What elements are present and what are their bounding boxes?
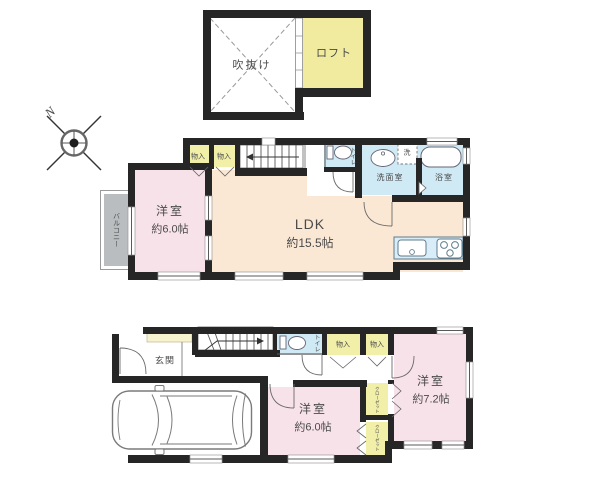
toilet-icon-2f <box>327 146 352 159</box>
bedroom2-name: 洋室 <box>299 403 327 415</box>
closet2-label: クローゼット <box>375 425 380 452</box>
washroom-label: 洗面室 <box>377 174 404 182</box>
bedroom-2f <box>135 170 205 272</box>
stairs-1f-arrow <box>257 338 264 345</box>
loft-label: ロフト <box>316 49 352 60</box>
kitchen-sink-icon <box>398 240 426 256</box>
door-arc-toilet-1f <box>302 355 322 375</box>
car-mirror-top <box>155 386 164 392</box>
bedroom1-size: 約7.2帖 <box>412 395 449 406</box>
loft-divider-window <box>296 18 303 88</box>
bedroom1-name: 洋室 <box>417 375 445 387</box>
bedroom-2f-size: 約6.0帖 <box>151 225 188 236</box>
washer-label: 洗 <box>404 150 411 157</box>
bathtub-icon <box>421 147 461 167</box>
ldk-room-right <box>355 196 463 272</box>
sink-icon <box>371 150 395 167</box>
car-mirror-bottom <box>155 449 164 455</box>
compass-icon <box>47 116 101 170</box>
bathroom-label: 浴室 <box>435 174 453 182</box>
door-arc-entrance <box>120 348 146 374</box>
storage2-1f-door <box>368 357 386 366</box>
void-label: 吹抜け <box>233 61 272 72</box>
floor-plan: 吹抜け ロフト N 物入 物入 トイレ 洗面室 洗 浴室 洋室 約6.0帖 LD… <box>0 0 600 480</box>
storage2-2f-label: 物入 <box>217 154 231 161</box>
stove-icon <box>437 239 462 258</box>
closet1-label: クローゼット <box>375 387 380 414</box>
toilet-2f-label: トイレ <box>349 147 355 165</box>
storage1-1f-label: 物入 <box>336 342 350 349</box>
storage1-1f-door <box>330 357 356 368</box>
ldk-name: LDK <box>295 217 325 231</box>
kitchen-counter <box>394 237 463 259</box>
entrance-label: 玄関 <box>155 357 175 366</box>
toilet-icon-1f <box>280 336 306 350</box>
bedroom2-size: 約6.0帖 <box>294 423 331 434</box>
toilet-1f-label: トイレ <box>313 334 319 352</box>
bedroom-2f-name: 洋室 <box>156 205 184 217</box>
stairs-2f <box>240 145 305 168</box>
balcony-label: バルコニー <box>113 213 120 248</box>
storage1-2f-label: 物入 <box>191 154 205 161</box>
loft-floor <box>203 10 371 120</box>
storage2-1f-label: 物入 <box>370 342 384 349</box>
car-icon <box>113 386 252 455</box>
ldk-size: 約15.5帖 <box>286 237 333 249</box>
